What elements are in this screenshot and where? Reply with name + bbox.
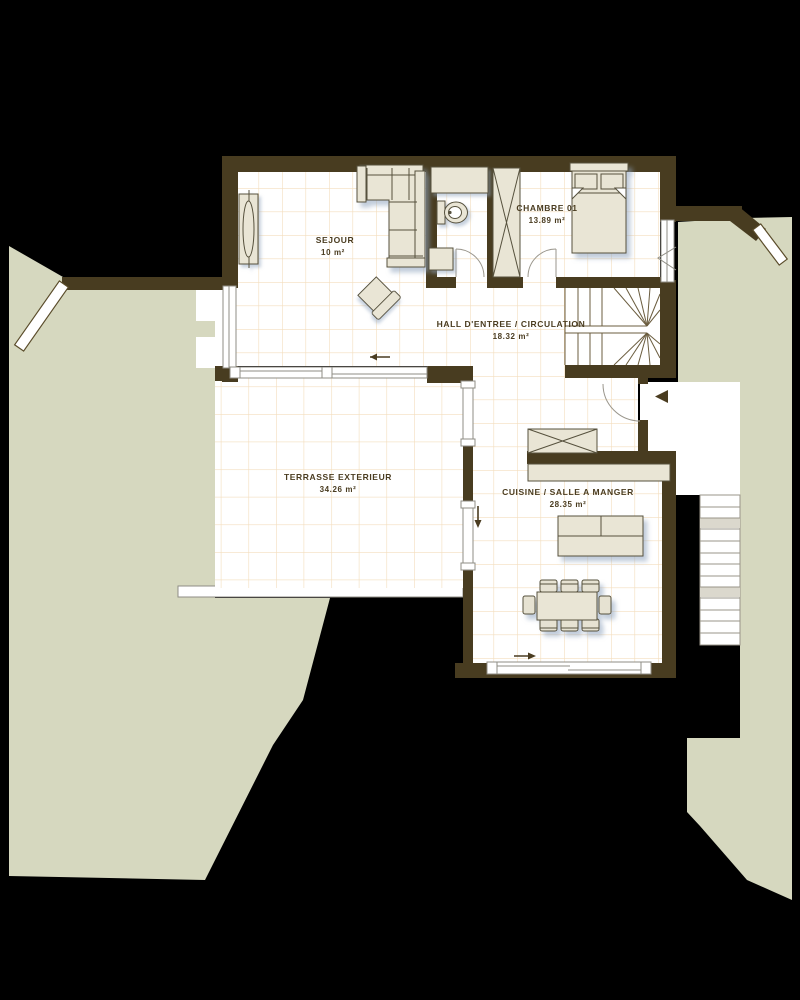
window-well-notch [196,321,215,337]
dining-table-symbol [537,592,597,620]
terrasse-label: TERRASSE EXTERIEUR [284,472,392,482]
chambre-label: CHAMBRE 01 [516,203,577,213]
terrasse-area: 34.26 m² [320,485,357,494]
floor-plan-page: SEJOUR 10 m² CHAMBRE 01 13.89 m² HALL D'… [0,0,800,1000]
vanity-symbol [431,167,488,193]
hall-label: HALL D'ENTREE / CIRCULATION [437,319,586,329]
kitchen-sliding-window [495,662,643,674]
chambre-area: 13.89 m² [529,216,566,225]
shower-base-symbol [429,248,453,270]
exterior-staircase [700,495,740,645]
sejour-label: SEJOUR [316,235,355,245]
kitchen-west-window-1 [463,381,473,446]
cuisine-label: CUISINE / SALLE A MANGER [502,487,634,497]
sejour-area: 10 m² [321,248,345,257]
retaining-wall-left [62,277,225,290]
kitchen-island-symbol [558,516,643,556]
kitchen-counter-symbol [528,464,670,481]
sideboard-symbol [239,190,258,268]
wardrobe-symbol [493,168,520,277]
bed-symbol [570,163,628,253]
hall-area: 18.32 m² [493,332,530,341]
cuisine-area: 28.35 m² [550,500,587,509]
kitchen-west-window-2 [463,501,473,570]
toilet-symbol [437,201,468,224]
hall-cabinet-symbol [528,429,597,453]
floor-plan-svg: SEJOUR 10 m² CHAMBRE 01 13.89 m² HALL D'… [0,0,800,1000]
